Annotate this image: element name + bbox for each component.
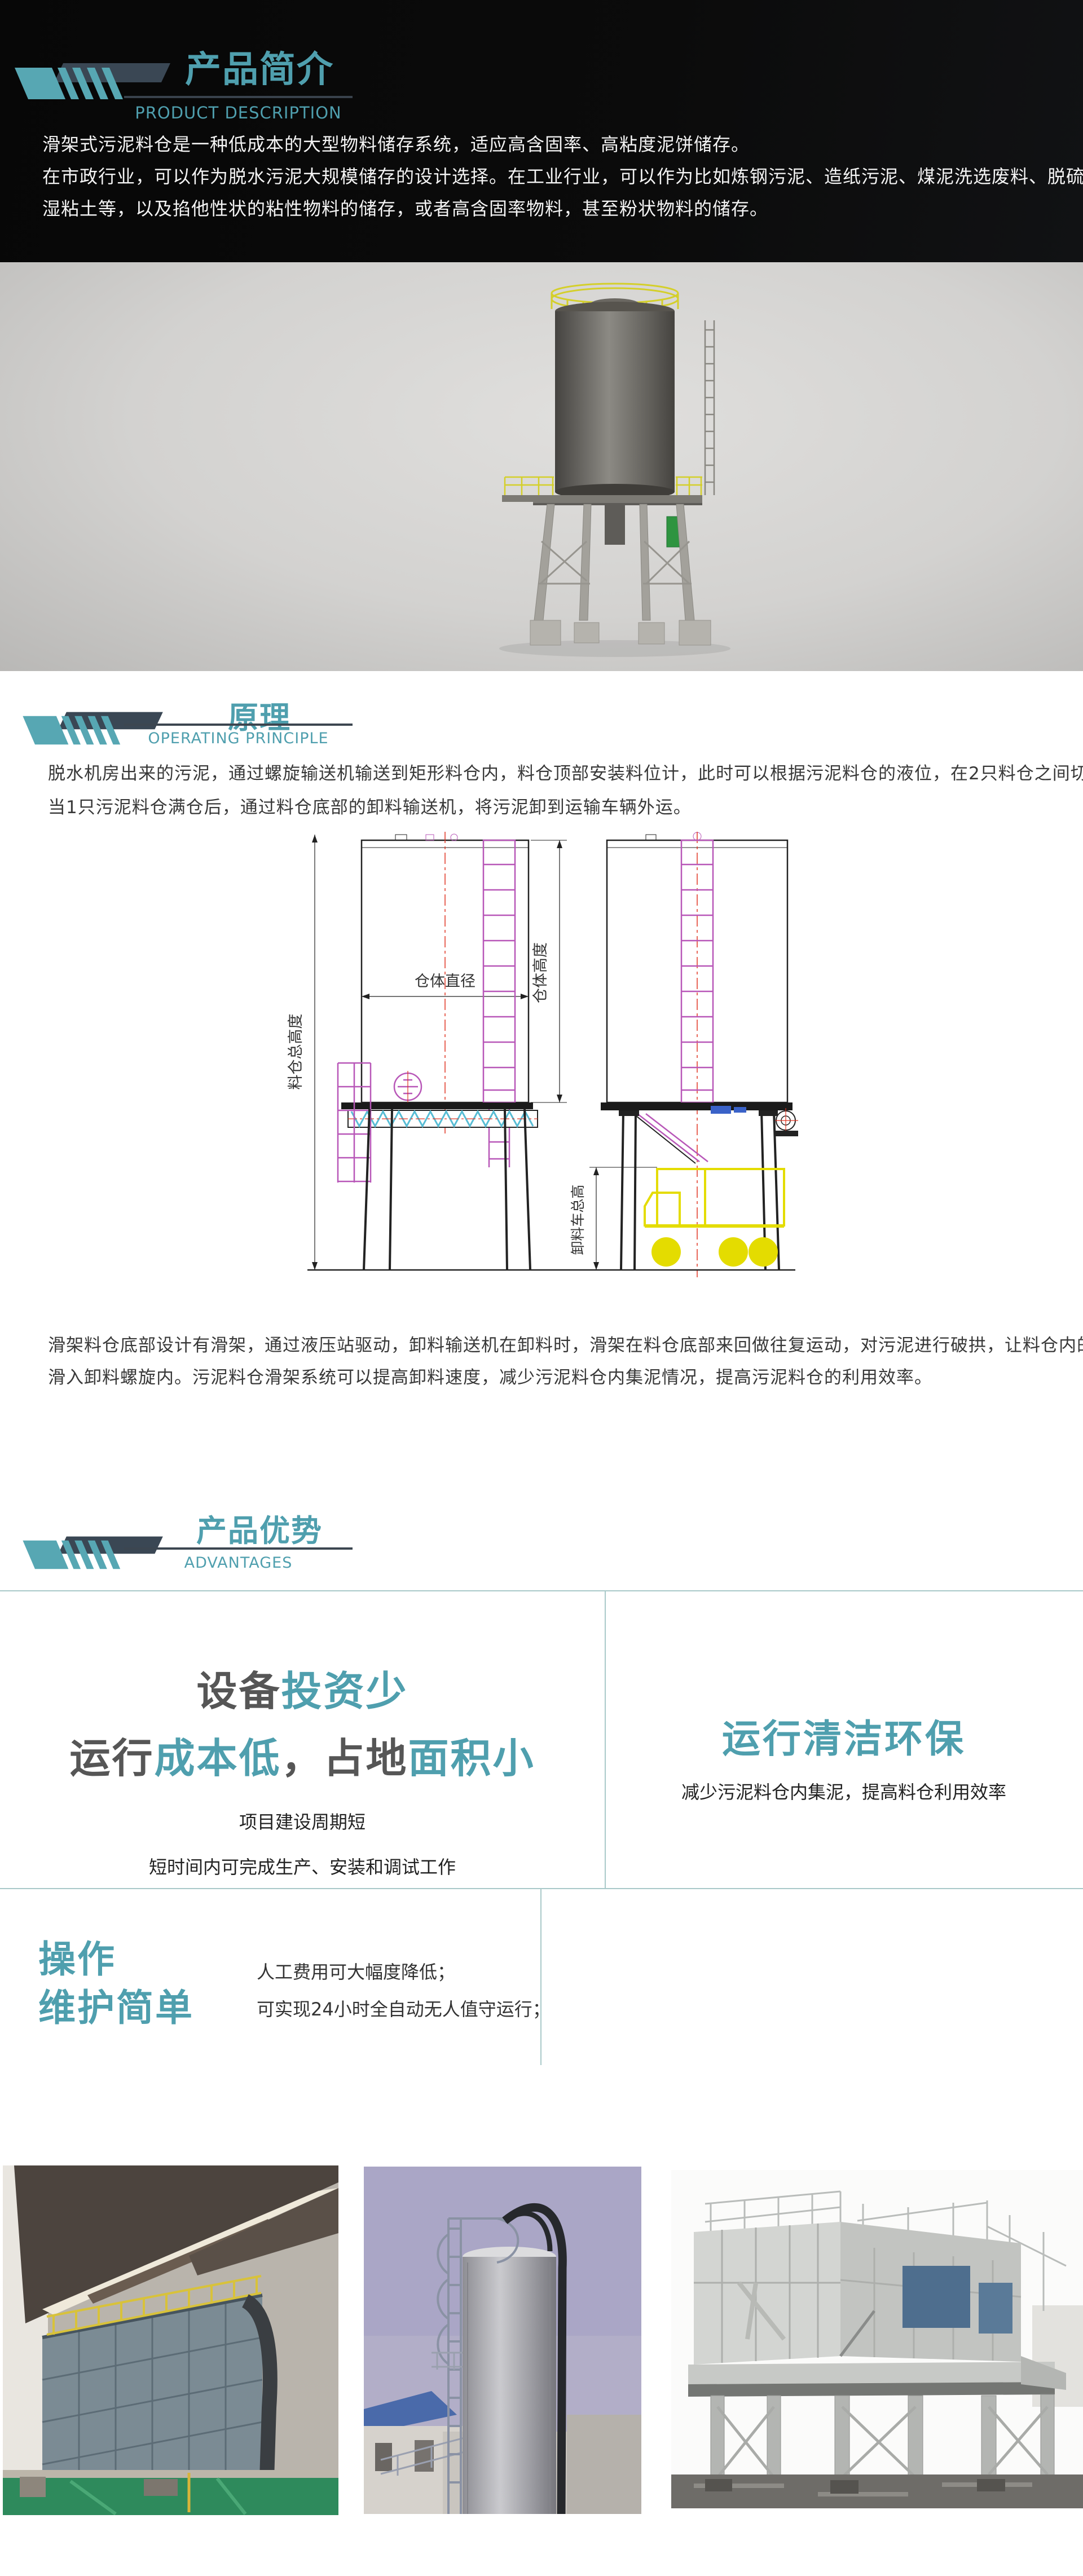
intro-subtitle: PRODUCT DESCRIPTION — [113, 103, 364, 122]
principle-paragraph2-line1: 滑架料仓底部设计有滑架，通过液压站驱动，卸料输送机在卸料时，滑架在料仓底部来回做… — [48, 1330, 1083, 1362]
advantages-table-top-border — [0, 1590, 1083, 1591]
intro-section: 产品简介 PRODUCT DESCRIPTION 滑架式污泥料仓是一种低成本的大… — [0, 0, 1083, 262]
manhole-symbol — [394, 1071, 421, 1102]
advantage-clean-heading: 运行清洁环保 — [605, 1708, 1083, 1763]
operation-sub2: 可实现24小时全自动无人值守运行； — [257, 1995, 551, 2021]
advantage-clean-cell: 运行清洁环保 减少污泥料仓内集泥，提高料仓利用效率 — [605, 1708, 1083, 1804]
cylindrical-silo-photo[interactable] — [364, 2167, 641, 2514]
silo-technical-drawing: 仓体直径 仓体高度 料仓总高度 — [285, 832, 818, 1283]
silo-platform — [533, 495, 702, 504]
advantage-heading-line2: 运行成本低，占地面积小 — [0, 1725, 605, 1784]
advantages-title-divider — [124, 1547, 353, 1550]
indoor-rectangular-silo-photo[interactable] — [3, 2165, 338, 2515]
advantages-title: 产品优势 — [124, 1506, 395, 1550]
drawing-left-legs — [364, 1109, 530, 1270]
advantage-sub1: 项目建设周期短 — [0, 1808, 605, 1834]
advantage-investment-cell: 设备投资少 运行成本低，占地面积小 项目建设周期短 短时间内可完成生产、安装和调… — [0, 1658, 605, 1879]
drawing-right-view: 卸料车总高 — [570, 832, 798, 1277]
advantage-clean-sub: 减少污泥料仓内集泥，提高料仓利用效率 — [605, 1778, 1083, 1804]
dim-label-truck-height: 卸料车总高 — [570, 1184, 586, 1255]
dim-label-silo-diameter: 仓体直径 — [415, 973, 476, 990]
principle-paragraph2-line2: 滑入卸料螺旋内。污泥料仓滑架系统可以提高卸料速度，减少污泥料仓内集泥情况，提高污… — [48, 1362, 932, 1394]
blue-equipment — [902, 2266, 970, 2328]
operation-sub1: 人工费用可大幅度降低； — [257, 1958, 455, 1984]
advantage-heading-line1: 设备投资少 — [0, 1658, 605, 1717]
drawing-left-view: 仓体直径 仓体高度 料仓总高度 — [287, 832, 567, 1270]
intro-paragraph-line2: 在市政行业，可以作为脱水污泥大规模储存的设计选择。在工业行业，可以作为比如炼钢污… — [42, 161, 1083, 193]
intro-paragraph-line3: 湿粘土等，以及掐他性状的粘性物料的储存，或者高含固率物料，甚至粉状物料的储存。 — [42, 193, 768, 225]
principle-paragraph1-line2: 当1只污泥料仓满仓后，通过料仓底部的卸料输送机，将污泥卸到运输车辆外运。 — [48, 791, 692, 824]
intro-title-divider — [124, 96, 353, 98]
dim-label-total-height: 料仓总高度 — [287, 1014, 305, 1090]
silo-discharge-chute — [605, 504, 625, 545]
product-detail-page: 产品简介 PRODUCT DESCRIPTION 滑架式污泥料仓是一种低成本的大… — [0, 0, 1083, 2576]
dim-label-silo-height: 仓体高度 — [532, 942, 549, 1003]
silo-tank-body — [555, 311, 675, 492]
principle-subtitle: OPERATING PRINCIPLE — [113, 730, 364, 747]
operation-heading: 操作 维护简单 — [38, 1935, 194, 2032]
advantages-row-divider — [0, 1888, 1083, 1889]
advantage-sub2: 短时间内可完成生产、安装和调试工作 — [0, 1853, 605, 1879]
cylindrical-silo-body — [463, 2257, 556, 2514]
advantages-row2-divider — [540, 1889, 541, 2065]
ground — [671, 2474, 1083, 2508]
intro-title: 产品简介 — [124, 41, 395, 92]
principle-title-divider — [124, 724, 353, 726]
silo-ladder — [705, 320, 714, 495]
intro-paragraph-line1: 滑架式污泥料仓是一种低成本的大型物料储存系统，适应高含固率、高粘度泥饼储存。 — [42, 129, 750, 161]
advantages-subtitle: ADVANTAGES — [113, 1554, 364, 1572]
blue-hydraulic-part — [711, 1106, 731, 1114]
sludge-silo-3d-render — [479, 276, 761, 665]
principle-paragraph1-line1: 脱水机房出来的污泥，通过螺旋输送机输送到矩形料仓内，料仓顶部安装料位计，此时可以… — [48, 757, 1083, 791]
render-section — [0, 262, 1083, 671]
outdoor-silo-structure-photo[interactable] — [671, 2170, 1083, 2508]
